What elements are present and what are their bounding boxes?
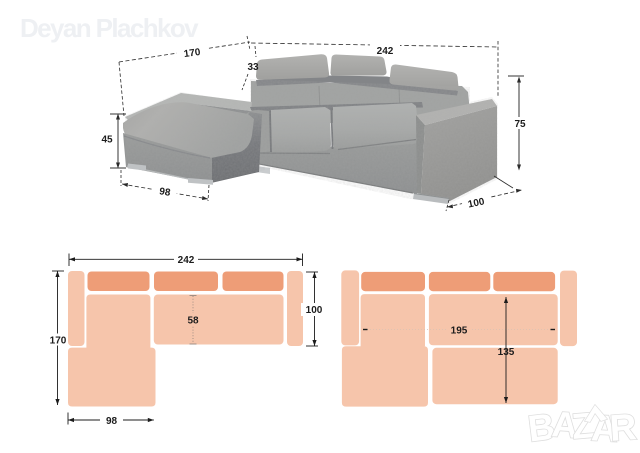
svg-text:242: 242 [178,255,195,266]
svg-text:98: 98 [106,416,118,427]
svg-text:33: 33 [247,62,259,73]
svg-text:135: 135 [498,347,515,358]
svg-text:75: 75 [514,119,526,130]
svg-text:98: 98 [158,186,171,199]
svg-text:58: 58 [187,316,199,327]
svg-text:195: 195 [451,326,468,337]
svg-text:R: R [608,406,638,449]
svg-text:45: 45 [101,135,113,146]
svg-text:Deyan Plachkov: Deyan Plachkov [20,13,199,43]
svg-text:170: 170 [50,336,67,347]
svg-text:242: 242 [377,46,394,57]
svg-text:100: 100 [306,305,323,316]
